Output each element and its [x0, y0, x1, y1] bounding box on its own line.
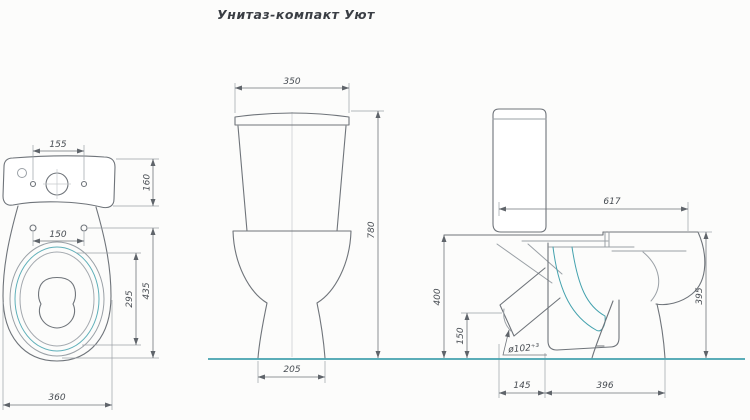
pedestal-front [258, 303, 325, 358]
bowl-width-label: 360 [48, 393, 65, 403]
seat-height-label: 400 [433, 288, 443, 305]
bowl-opening [20, 252, 94, 346]
bowl-height-label: 395 [695, 287, 705, 304]
outlet-axis-height-label: 150 [456, 327, 466, 344]
pedestal-side [592, 301, 665, 358]
technical-drawing: Унитаз-компакт Уют 155 160 [0, 0, 750, 420]
opening-length-label: 295 [125, 290, 135, 307]
total-height-label: 780 [367, 221, 377, 238]
drawing-title: Унитаз-компакт Уют [217, 7, 375, 22]
tank-depth-label: 160 [143, 174, 153, 191]
side-view: 617 400 150 395 145 396 ø1 [433, 109, 712, 398]
seat-rim-inner [15, 247, 99, 351]
dim-tank-depth: 160 [113, 159, 159, 206]
tank-outline-top [3, 156, 115, 208]
base-side [548, 243, 619, 350]
water-outlet-shape [39, 278, 76, 329]
dim-seat-holes-width: 150 [33, 230, 84, 246]
drawing-canvas: Унитаз-компакт Уют 155 160 [0, 0, 750, 420]
flush-channel [497, 244, 562, 283]
base-depth-label: 396 [596, 381, 613, 391]
top-view: 155 160 150 295 435 360 [3, 140, 159, 410]
outlet-offset-label: 145 [513, 381, 530, 391]
seat-holes-width-label: 150 [49, 230, 66, 240]
bowl-length-label: 435 [142, 282, 152, 299]
tank-holes-width-label: 155 [49, 140, 66, 150]
base-width-label: 205 [283, 365, 300, 375]
front-view: 350 780 205 [233, 77, 384, 383]
dim-base-width: 205 [258, 361, 325, 383]
outlet-diameter-callout: ø102⁺³ [503, 330, 547, 355]
seat-bolt-hole-right [81, 225, 87, 231]
outlet-pipe [500, 268, 560, 336]
dim-total-height: 780 [351, 111, 384, 358]
total-depth-label: 617 [603, 197, 620, 207]
seat-hinge [605, 232, 609, 247]
tank-width-label: 350 [283, 77, 300, 87]
outlet-diameter-label: ø102⁺³ [507, 343, 540, 356]
dim-tank-width: 350 [235, 77, 349, 113]
dim-bowl-width: 360 [3, 300, 112, 410]
dim-seat-height: 400 [433, 235, 444, 358]
rim-inner-line [549, 247, 686, 251]
tank-side [493, 109, 546, 232]
bowl-inner-side [643, 252, 659, 301]
trap-curve [553, 247, 605, 331]
extension-line [235, 83, 349, 113]
seat-rim-outer [10, 242, 104, 356]
dim-outlet-axis-height: 150 [456, 313, 502, 358]
seat-bolt-hole-left [30, 225, 36, 231]
